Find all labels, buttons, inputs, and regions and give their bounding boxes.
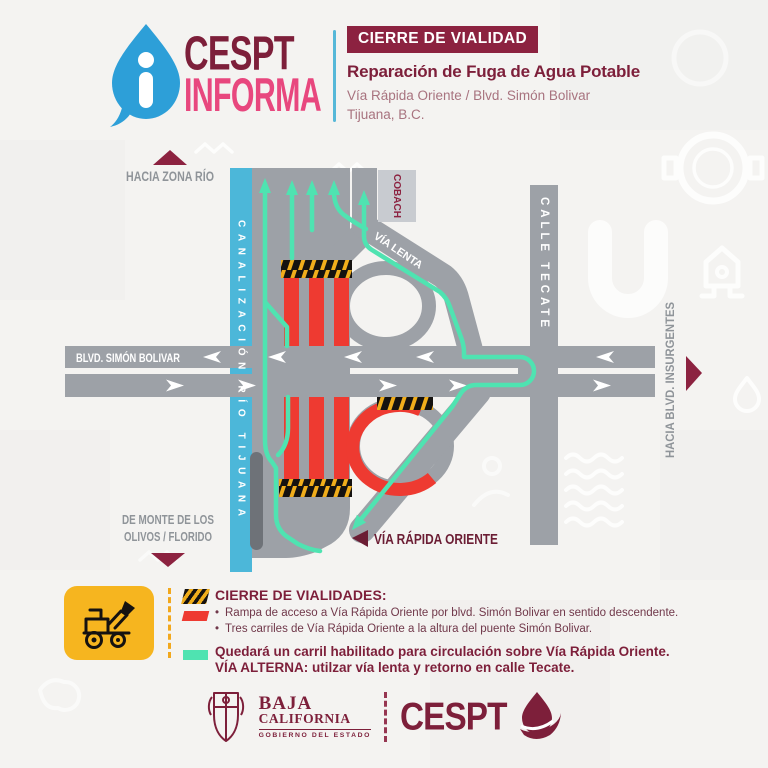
closure-swatches [183,587,215,621]
excavator-icon-box [64,586,154,660]
closed-lane-swatch [182,611,209,621]
gov-line3: GOBIERNO DEL ESTADO [259,729,371,739]
arrow-down-monte-olivos [151,553,185,567]
label-hacia-insurgentes: HACIA BLVD. INSURGENTES [665,302,677,458]
arrow-right-insurgentes [686,356,702,391]
infographic-road-closure: { "colors": { "maroon": "#8c2240", "maro… [0,0,768,768]
label-hacia-zona-rio: HACIA ZONA RÍO [126,169,214,184]
legend-open-lane-row: Quedará un carril habilitado para circul… [183,644,724,676]
open-lane-swatch [183,650,208,660]
arrow-up-zona-rio [153,150,187,165]
alternate-route-note: VÍA ALTERNA: utilzar vía lenta y retorno… [215,660,670,676]
label-canalizacion: CANALIZACIÓN RÍO TIJUANA [236,220,249,516]
legend: CIERRE DE VIALIDADES: Rampa de acceso a … [64,586,724,676]
label-calle-tecate: CALLE TECATE [538,197,550,327]
legend-item: Tres carriles de Vía Rápida Oriente a la… [215,623,678,635]
label-de-monte-1: DE MONTE DE LOS [122,513,214,527]
legend-heading: CIERRE DE VIALIDADES: [215,587,678,603]
legend-body: CIERRE DE VIALIDADES: Rampa de acceso a … [183,586,724,676]
label-cobach: COBACH [391,174,403,218]
open-lane-note: Quedará un carril habilitado para circul… [215,644,670,660]
lane-divider [250,452,263,550]
cespt-logo: CESPT [400,691,562,743]
footer-divider [384,692,387,742]
gov-line2: CALIFORNIA [259,712,371,726]
legend-divider [168,588,171,658]
cespt-drop-icon [518,691,562,743]
hazard-bar-ramp [377,395,433,410]
gov-wordmark: BAJA CALIFORNIA GOBIERNO DEL ESTADO [259,695,371,739]
legend-list: Rampa de acceso a Vía Rápida Oriente por… [215,607,678,635]
footer: BAJA CALIFORNIA GOBIERNO DEL ESTADO CESP… [0,688,768,746]
label-via-rapida-oriente: VÍA RÁPIDA ORIENTE [374,531,498,548]
hazard-swatch [181,589,210,604]
open-lane-swatches [183,644,215,660]
hazard-bar-bottom [279,479,352,497]
gov-line1: BAJA [259,695,371,712]
state-coat-of-arms-icon [206,688,246,746]
label-de-monte-2: OLIVOS / FLORIDO [124,530,212,544]
hazard-bar-top [281,260,352,278]
cespt-wordmark: CESPT [400,695,507,739]
road-calle-tecate-south [530,397,558,545]
legend-closures-row: CIERRE DE VIALIDADES: Rampa de acceso a … [183,587,724,635]
excavator-icon [77,595,141,651]
legend-item: Rampa de acceso a Vía Rápida Oriente por… [215,607,678,619]
label-blvd-simon-bolivar: BLVD. SIMÓN BOLIVAR [76,352,181,365]
